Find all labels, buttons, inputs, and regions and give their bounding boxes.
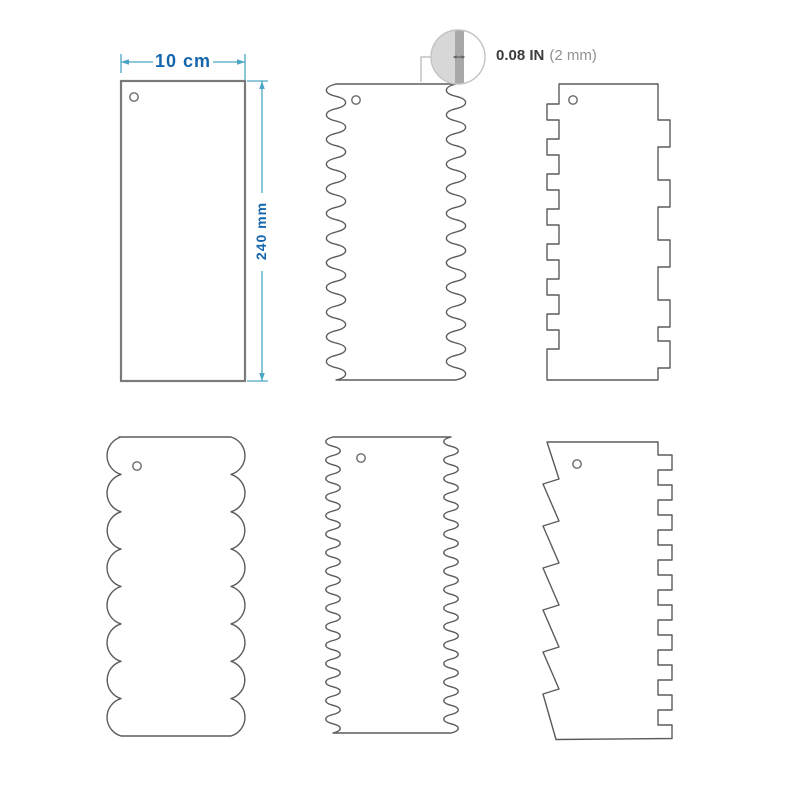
dimension-arrowhead xyxy=(259,81,265,89)
hang-hole xyxy=(357,454,365,462)
thickness-metric: (2 mm) xyxy=(549,47,597,64)
cake-scraper-diagram: { "annotations": { "width_label": "10 cm… xyxy=(0,0,800,800)
height-dimension-label: 240 mm xyxy=(253,186,271,276)
scraper-scallop xyxy=(107,437,245,736)
hang-hole xyxy=(569,96,577,104)
scraper-square-tooth-outline xyxy=(547,84,670,380)
scraper-square-tooth xyxy=(547,84,670,380)
scraper-plain-outline xyxy=(121,81,245,381)
callout-leader-line xyxy=(421,57,431,82)
scraper-scallop-outline xyxy=(107,437,245,736)
hang-hole xyxy=(573,460,581,468)
scraper-sawtooth-outline xyxy=(543,442,672,740)
scraper-wave-outline xyxy=(326,84,465,380)
dimension-arrowhead xyxy=(259,373,265,381)
thickness-value: 0.08 IN xyxy=(496,47,544,64)
hang-hole xyxy=(130,93,138,101)
diagram-canvas xyxy=(0,0,800,800)
thickness-dimension-label: 0.08 IN (2 mm) xyxy=(496,47,597,64)
hang-hole xyxy=(133,462,141,470)
scraper-fine-wave-outline xyxy=(326,437,458,733)
cross-section-left xyxy=(431,30,455,84)
scraper-plain xyxy=(121,81,245,381)
scraper-fine-wave xyxy=(326,437,458,733)
hang-hole xyxy=(352,96,360,104)
scraper-sawtooth xyxy=(543,442,672,740)
scraper-wave xyxy=(326,84,465,380)
width-dimension-label: 10 cm xyxy=(121,51,245,72)
thickness-callout xyxy=(421,30,485,84)
